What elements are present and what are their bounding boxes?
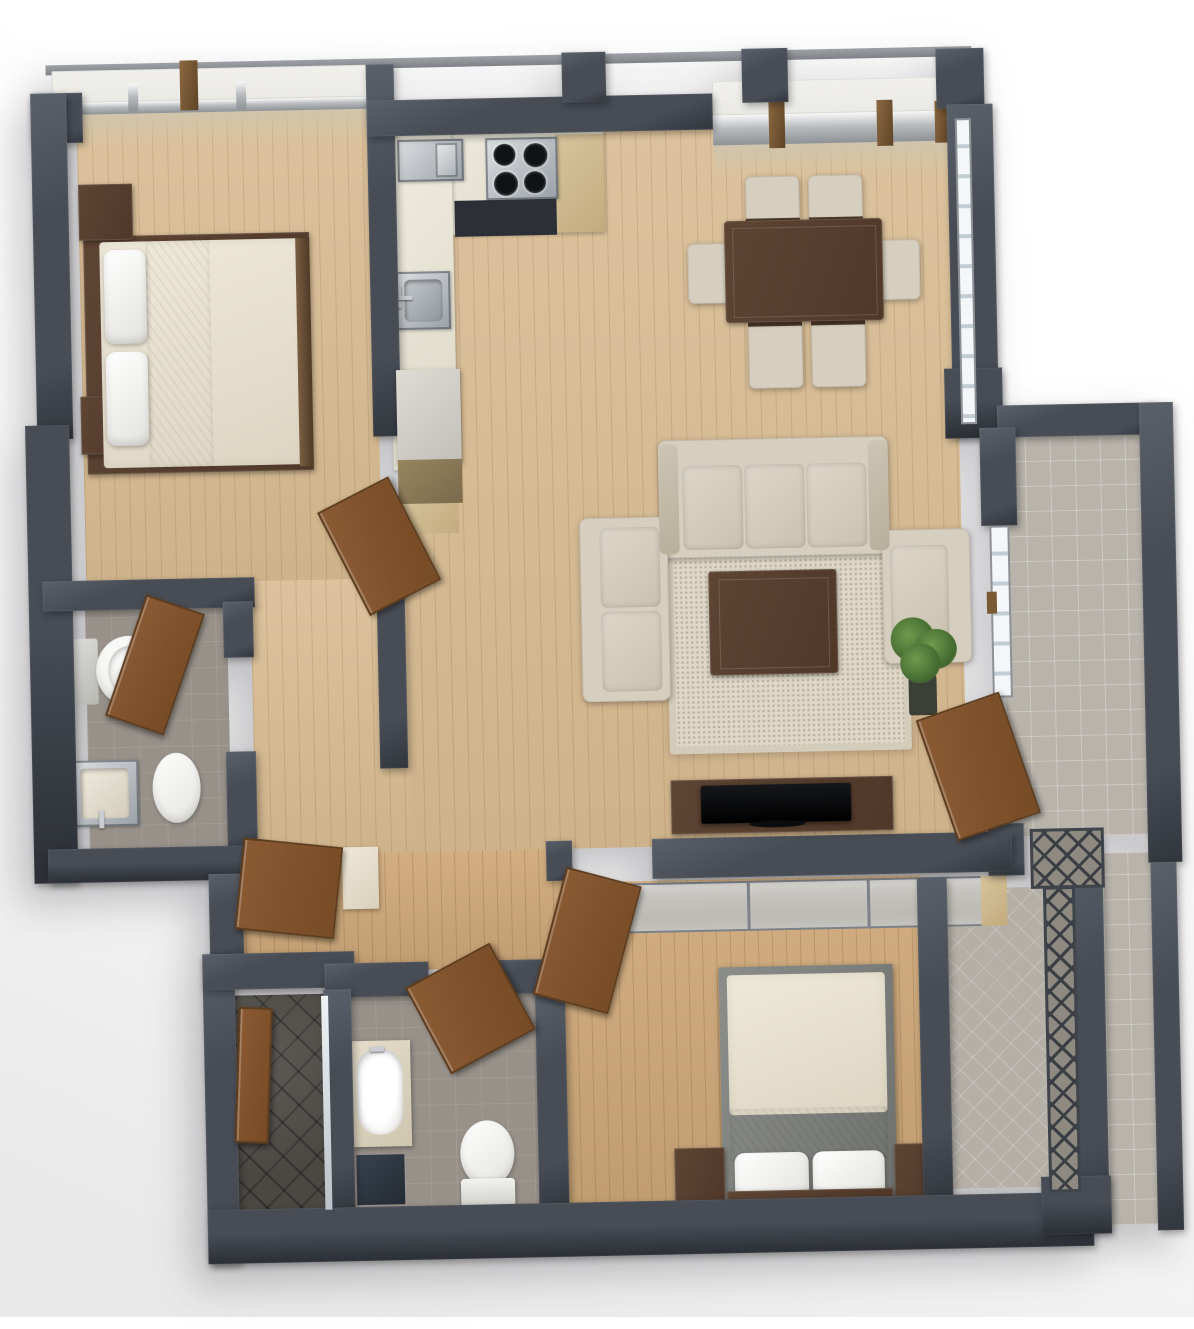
window-post-wood bbox=[768, 102, 785, 148]
nightstand bbox=[78, 184, 133, 241]
entry-door bbox=[234, 837, 343, 939]
faucet-icon bbox=[99, 810, 104, 828]
wall-living-east-a bbox=[979, 427, 1017, 526]
wall-bathroom1-east-b bbox=[226, 751, 258, 852]
bed1-pillow bbox=[103, 249, 147, 344]
microwave-door bbox=[435, 143, 458, 177]
lattice-railing-east bbox=[1043, 886, 1081, 1193]
pillar-north-b bbox=[741, 48, 788, 103]
kitchen-cabinet-wood bbox=[555, 134, 605, 233]
coffee-table-top-detail bbox=[718, 577, 830, 669]
sofa-cushion bbox=[744, 464, 806, 549]
utility-door-leaf bbox=[235, 1007, 273, 1144]
lattice-railing-corner bbox=[1030, 827, 1105, 889]
sofa-cushion bbox=[806, 462, 868, 547]
sink-basin bbox=[80, 768, 129, 819]
hall-cabinet-base bbox=[398, 459, 463, 504]
sofa-cushion bbox=[682, 465, 744, 550]
dining-chair bbox=[877, 239, 920, 300]
wall-corner-ne bbox=[935, 48, 984, 109]
wall-balcony-north bbox=[997, 402, 1158, 437]
window-clamp-icon bbox=[236, 81, 247, 109]
closet-end-cap bbox=[981, 875, 1008, 926]
entry-door-jamb bbox=[342, 847, 379, 910]
window-post-wood bbox=[179, 60, 198, 110]
vanity-basin bbox=[356, 1048, 404, 1135]
faucet-icon bbox=[370, 1047, 384, 1052]
wall-west-lower bbox=[25, 425, 79, 884]
loveseat-cushion bbox=[599, 527, 661, 608]
wall-bath2-bedroom2 bbox=[535, 985, 570, 1210]
dining-table-top-detail bbox=[732, 225, 878, 318]
toilet-tank bbox=[461, 1178, 516, 1207]
sliding-door-handle-icon bbox=[987, 592, 997, 614]
hall-cabinet-top bbox=[396, 369, 462, 464]
bath2-cabinet bbox=[356, 1154, 405, 1205]
oven-front bbox=[454, 199, 557, 237]
floor-plan-stage bbox=[0, 0, 1194, 1317]
bed1-blanket bbox=[145, 238, 214, 469]
apartment-floor-plan bbox=[0, 0, 1194, 1329]
sink-basin bbox=[404, 279, 443, 322]
wall-bathroom1-east-a bbox=[223, 601, 254, 658]
dining-window-shadow bbox=[713, 140, 952, 177]
dining-window-rail bbox=[713, 110, 952, 145]
window-post-wood bbox=[876, 100, 893, 146]
balcony2-floor bbox=[947, 887, 1049, 1189]
toilet-tank bbox=[71, 638, 98, 705]
wall-kitchen-north bbox=[366, 93, 713, 136]
sofa-arm bbox=[658, 444, 680, 554]
sofa-arm bbox=[867, 440, 889, 550]
bed1-pillow bbox=[105, 351, 149, 446]
tv bbox=[701, 783, 852, 824]
dining-chair bbox=[811, 320, 866, 387]
wall-west-upper bbox=[30, 93, 73, 440]
faucet-icon bbox=[396, 296, 412, 300]
bed2-duvet bbox=[727, 972, 888, 1115]
window-clamp-icon bbox=[128, 83, 139, 111]
pillar-north-a bbox=[561, 52, 606, 103]
loveseat-cushion bbox=[601, 611, 663, 692]
dining-chair bbox=[748, 322, 803, 389]
